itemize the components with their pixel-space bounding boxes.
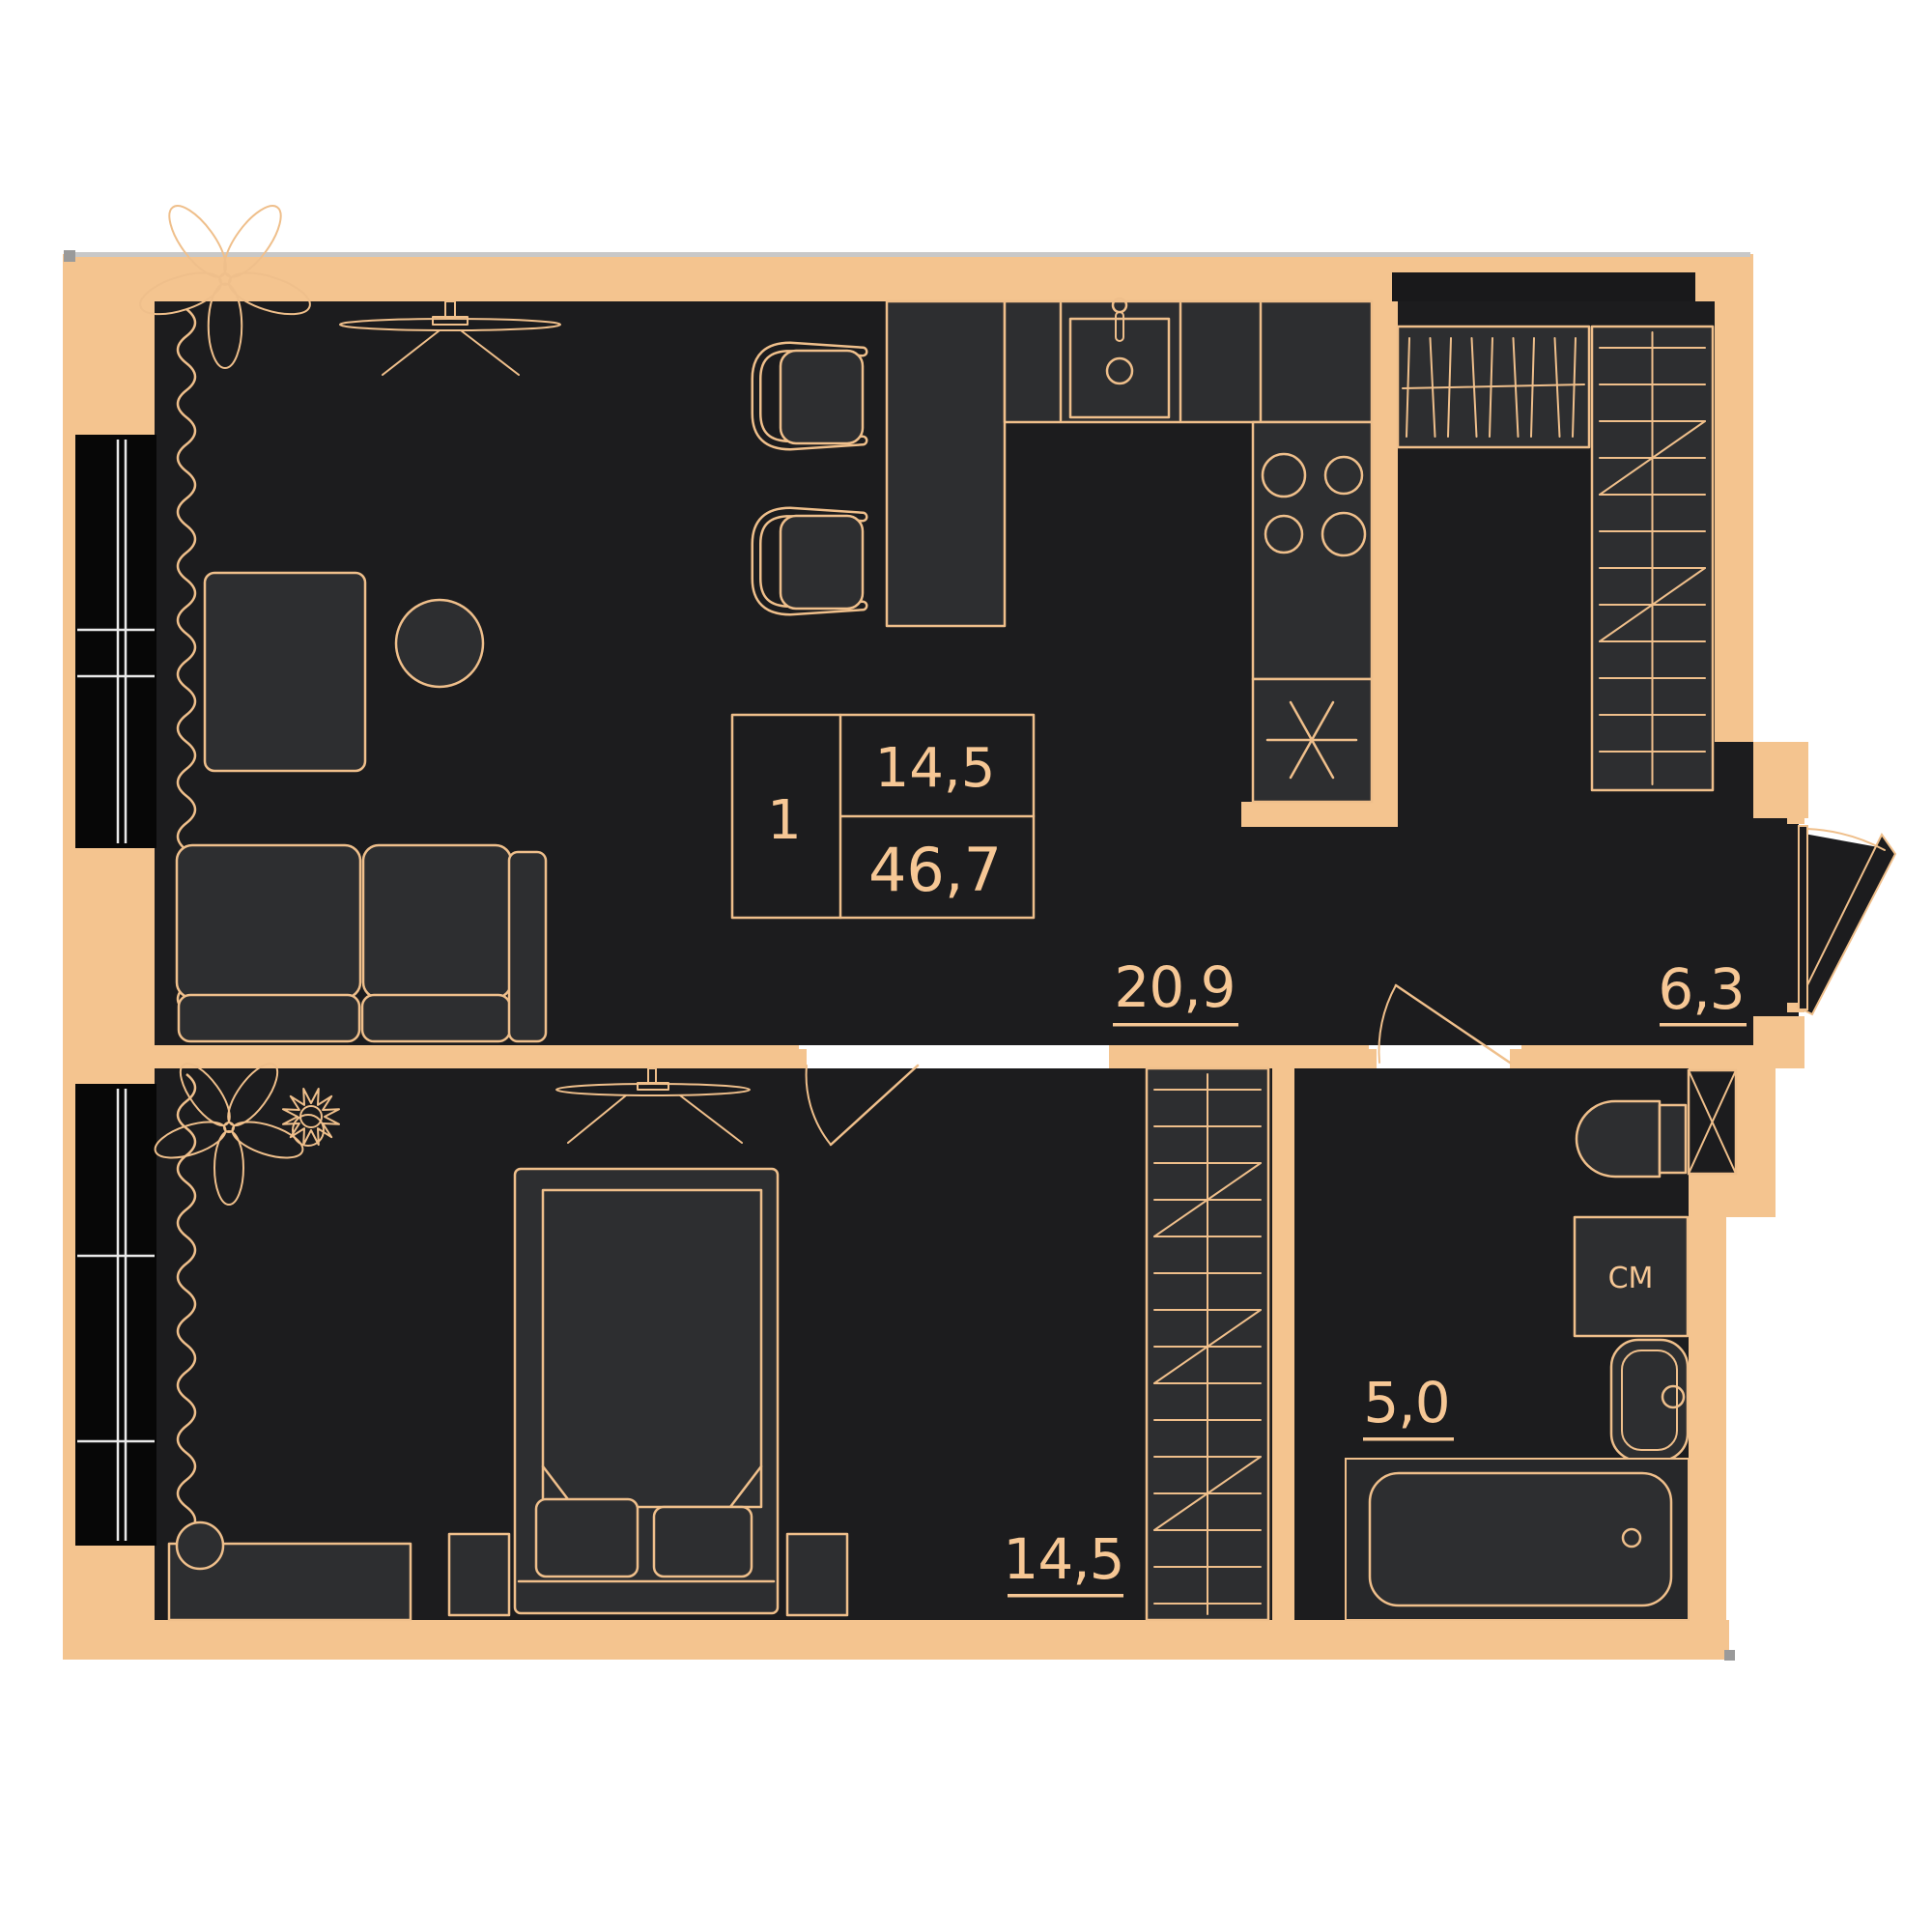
sofa-armrest [509, 852, 546, 1041]
middle-wall-left [63, 1045, 799, 1068]
bedroom-area-label: 14,5 [1003, 1526, 1123, 1592]
floor-plan-canvas: СМ 1 14,5 46,7 20,9 6,3 5,0 [0, 0, 1932, 1932]
entry-threshold-block [1753, 1016, 1804, 1068]
bathroom-area-label: 5,0 [1363, 1370, 1449, 1435]
living-room-window [75, 435, 156, 848]
entry-door-jamb-top [1787, 814, 1804, 824]
bathroom-door-jamb-right [1510, 1049, 1521, 1068]
nightstand-right [787, 1534, 847, 1615]
sofa-seat-cushion [179, 995, 359, 1041]
middle-wall-center [1109, 1045, 1369, 1068]
grid-marker-icon [64, 250, 75, 262]
floor-plan-page: СМ 1 14,5 46,7 20,9 6,3 5,0 [0, 0, 1932, 1932]
total-area-value: 46,7 [868, 835, 1002, 905]
door-leaf [1799, 826, 1807, 1009]
label-underline [1660, 1023, 1747, 1027]
coffee-table [396, 600, 483, 687]
pillow [536, 1499, 638, 1577]
toilet [1577, 1101, 1686, 1177]
label-underline [1113, 1023, 1238, 1027]
sofa-back-cushion [177, 845, 360, 998]
pillow [654, 1507, 752, 1577]
label-underline [1363, 1437, 1454, 1441]
label-underline [1008, 1594, 1123, 1598]
kitchen-wall [1372, 301, 1398, 802]
bar-counter [887, 301, 1005, 626]
rooms-count-value: 1 [767, 789, 802, 852]
nightstand-left [449, 1534, 509, 1615]
wall-niche [1392, 272, 1695, 301]
bedroom-window [75, 1084, 156, 1546]
grid-marker-icon [1724, 1650, 1735, 1661]
washing-machine: СМ [1575, 1217, 1688, 1336]
living-kitchen-area-label: 20,9 [1114, 954, 1235, 1020]
bathroom-door-jamb-left [1369, 1049, 1377, 1068]
bathroom-sink [1611, 1340, 1688, 1461]
sofa-seat-cushion [362, 995, 510, 1041]
bathtub [1346, 1459, 1689, 1620]
right-wall-step [1753, 742, 1808, 818]
stool [177, 1522, 223, 1569]
bed [515, 1169, 778, 1613]
bedroom-bathroom-divider-wall [1272, 1068, 1294, 1620]
hallway-area-label: 6,3 [1658, 956, 1744, 1022]
right-wall-upper [1715, 254, 1753, 742]
chaise-lounge [205, 573, 365, 771]
washing-machine-label: СМ [1608, 1262, 1654, 1295]
bedroom-door-jamb [799, 1049, 807, 1068]
vent-shaft [1689, 1070, 1736, 1174]
living-area-value: 14,5 [875, 737, 996, 800]
bottom-wall [63, 1620, 1729, 1660]
kitchen-wall-stub [1241, 802, 1398, 827]
facade-shadow-line [72, 252, 1750, 257]
sofa-back-cushion [363, 845, 511, 998]
